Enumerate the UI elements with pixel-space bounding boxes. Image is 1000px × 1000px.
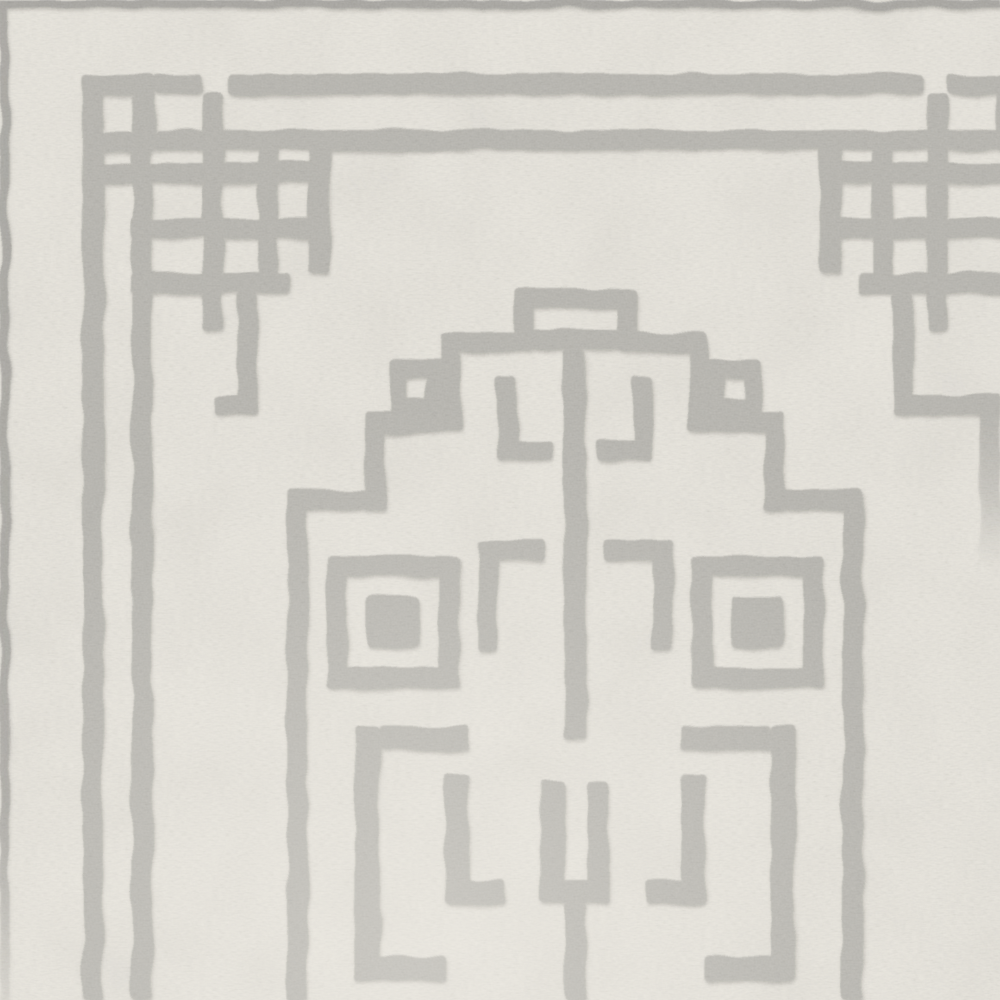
- rug-figure: [0, 0, 1000, 1000]
- rug-photo: [0, 0, 1000, 1000]
- rug-photo-svg: [0, 0, 1000, 1000]
- light-wash: [0, 0, 1000, 1000]
